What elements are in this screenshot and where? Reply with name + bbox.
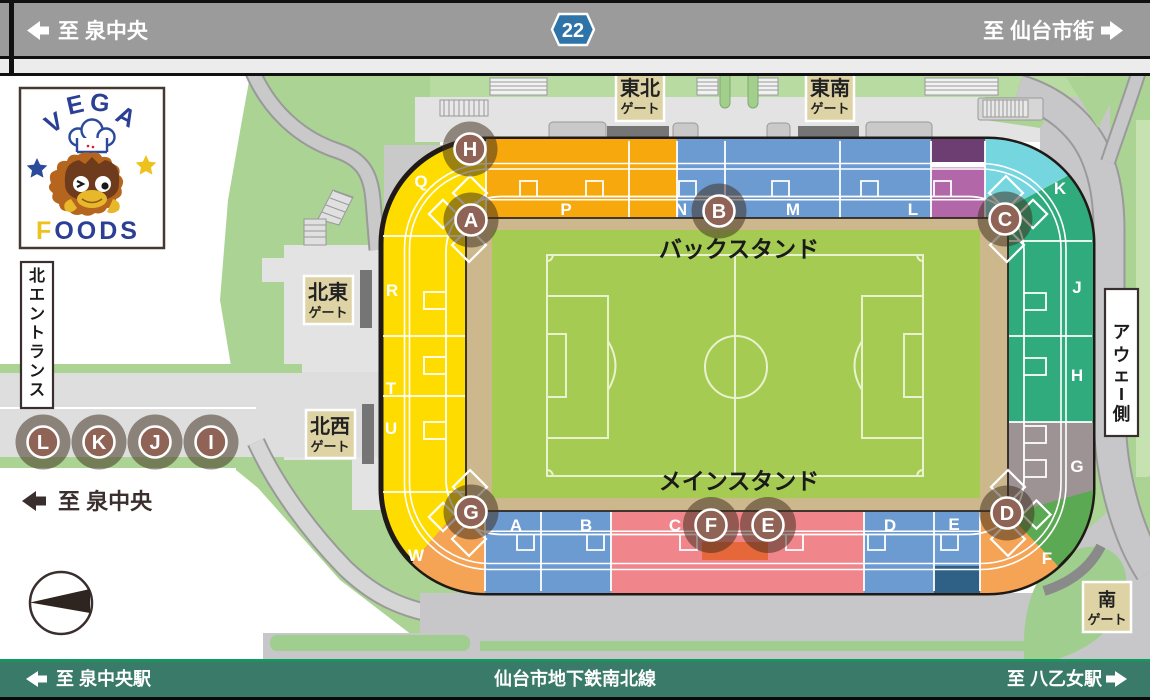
svg-text:W: W bbox=[408, 546, 425, 565]
svg-text:北: 北 bbox=[29, 267, 45, 285]
svg-text:FOODS: FOODS bbox=[36, 217, 140, 245]
svg-text:ラ: ラ bbox=[29, 344, 45, 361]
svg-text:A: A bbox=[464, 210, 478, 232]
svg-text:ウ: ウ bbox=[1113, 345, 1131, 365]
svg-text:K: K bbox=[92, 432, 107, 454]
svg-text:L: L bbox=[37, 432, 49, 454]
svg-text:北西: 北西 bbox=[310, 415, 350, 438]
svg-text:ゲート: ゲート bbox=[1087, 612, 1126, 627]
svg-text:L: L bbox=[908, 200, 918, 219]
svg-text:F: F bbox=[705, 515, 717, 537]
svg-text:D: D bbox=[884, 516, 896, 535]
svg-text:H: H bbox=[1071, 366, 1083, 385]
svg-text:R: R bbox=[386, 281, 398, 300]
svg-text:メインスタンド: メインスタンド bbox=[659, 468, 820, 494]
svg-text:N: N bbox=[675, 200, 687, 219]
svg-text:C: C bbox=[998, 209, 1012, 231]
svg-text:ゲート: ゲート bbox=[620, 101, 659, 116]
svg-text:T: T bbox=[386, 379, 397, 398]
svg-text:ア: ア bbox=[1113, 322, 1131, 342]
svg-text:ン: ン bbox=[29, 306, 45, 323]
svg-text:K: K bbox=[1054, 179, 1067, 198]
svg-text:F: F bbox=[1042, 549, 1052, 568]
svg-text:C: C bbox=[669, 516, 681, 535]
svg-text:G: G bbox=[1070, 457, 1083, 476]
svg-text:至 泉中央: 至 泉中央 bbox=[58, 489, 153, 514]
svg-text:E: E bbox=[761, 515, 774, 537]
svg-text:側: 側 bbox=[1112, 404, 1131, 424]
svg-text:ゲート: ゲート bbox=[310, 439, 349, 454]
svg-text:U: U bbox=[385, 419, 397, 438]
svg-text:南: 南 bbox=[1098, 589, 1116, 610]
svg-text:B: B bbox=[580, 516, 592, 535]
svg-text:ト: ト bbox=[29, 325, 45, 342]
svg-text:I: I bbox=[208, 432, 214, 454]
svg-text:J: J bbox=[1072, 278, 1081, 297]
svg-text:ゲート: ゲート bbox=[308, 305, 347, 320]
svg-text:Q: Q bbox=[414, 172, 427, 191]
svg-text:J: J bbox=[149, 432, 160, 454]
svg-text:B: B bbox=[712, 201, 726, 223]
svg-text:バックスタンド: バックスタンド bbox=[659, 236, 819, 262]
svg-text:至 八乙女駅: 至 八乙女駅 bbox=[1007, 668, 1103, 689]
svg-text:仙台市地下鉄南北線: 仙台市地下鉄南北線 bbox=[494, 668, 656, 689]
svg-text:H: H bbox=[463, 139, 477, 161]
svg-text:A: A bbox=[510, 516, 522, 535]
svg-text:至 仙台市街: 至 仙台市街 bbox=[983, 19, 1094, 43]
svg-text:G: G bbox=[89, 88, 111, 118]
svg-text:東北: 東北 bbox=[620, 77, 660, 100]
svg-text:至 泉中央駅: 至 泉中央駅 bbox=[56, 668, 152, 689]
svg-text:ェ: ェ bbox=[1113, 365, 1131, 385]
svg-text:G: G bbox=[463, 502, 479, 524]
svg-text:P: P bbox=[560, 200, 571, 219]
svg-text:ン: ン bbox=[29, 363, 45, 380]
svg-text:ゲート: ゲート bbox=[810, 101, 849, 116]
svg-text:エ: エ bbox=[29, 287, 45, 304]
svg-text:東南: 東南 bbox=[810, 77, 850, 100]
svg-text:D: D bbox=[1000, 503, 1014, 525]
svg-text:ス: ス bbox=[29, 382, 45, 399]
svg-text:22: 22 bbox=[562, 20, 584, 42]
svg-text:E: E bbox=[948, 515, 959, 534]
svg-text:M: M bbox=[786, 200, 800, 219]
svg-text:北東: 北東 bbox=[308, 281, 348, 304]
svg-text:至 泉中央: 至 泉中央 bbox=[58, 19, 149, 43]
